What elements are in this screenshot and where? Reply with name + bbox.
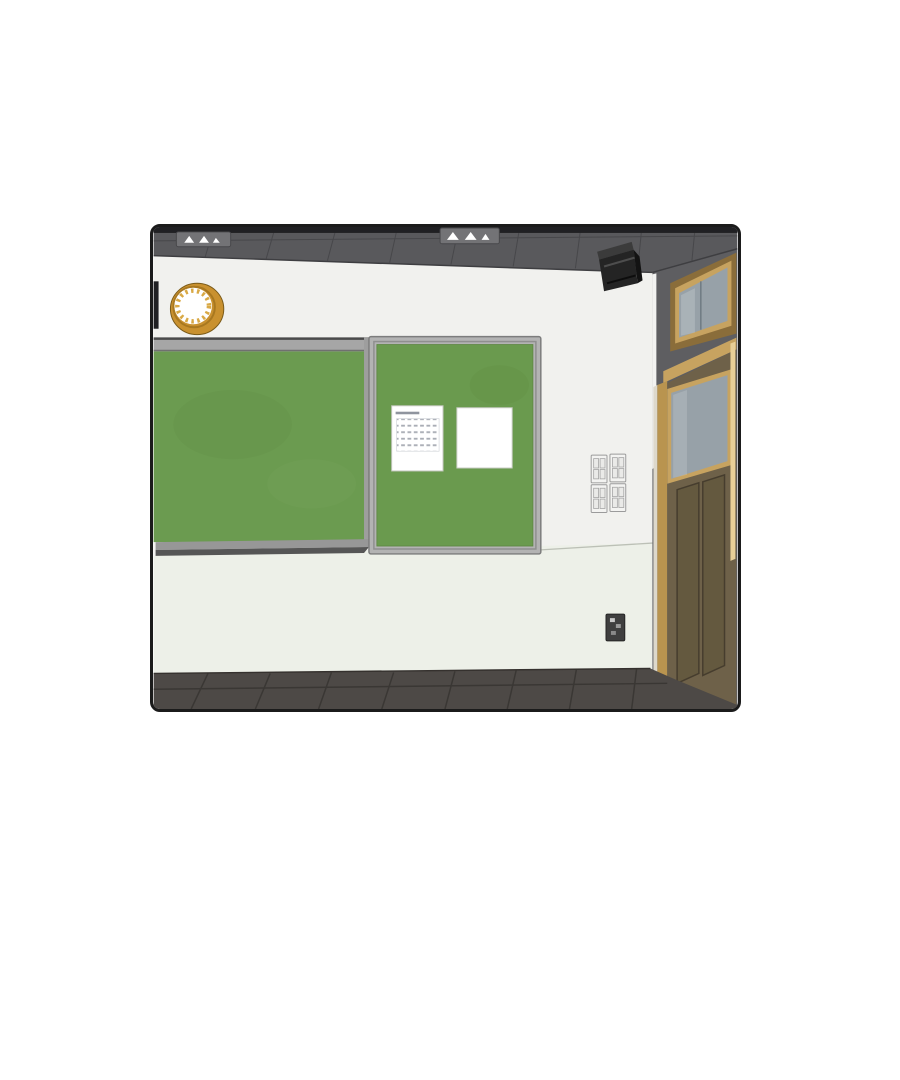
left-wall-object (154, 281, 159, 328)
door-frame-left-jamb (657, 381, 667, 695)
door-edge-highlight (730, 342, 735, 561)
clock-face (174, 288, 212, 325)
wall-clock (170, 283, 223, 334)
comic-page: { "scene": { "description": "3D rendered… (0, 0, 900, 1080)
ceiling-light-fixture-right (440, 228, 499, 244)
wall-outlet (606, 614, 625, 641)
door-panel-left (677, 483, 699, 684)
door-jamb-highlight (653, 385, 657, 691)
blank-paper (457, 408, 512, 468)
door (653, 338, 736, 707)
calendar-grid (397, 419, 439, 452)
bulletin-board (369, 337, 541, 554)
calendar-title-text (396, 412, 420, 415)
ceiling-light-fixture-left (176, 232, 230, 247)
classroom-scene (153, 227, 738, 709)
door-panel-right (703, 475, 725, 676)
calendar-paper (392, 406, 443, 471)
classroom-illustration-panel (150, 224, 741, 712)
floor (154, 669, 738, 709)
chalkboard (154, 338, 369, 556)
